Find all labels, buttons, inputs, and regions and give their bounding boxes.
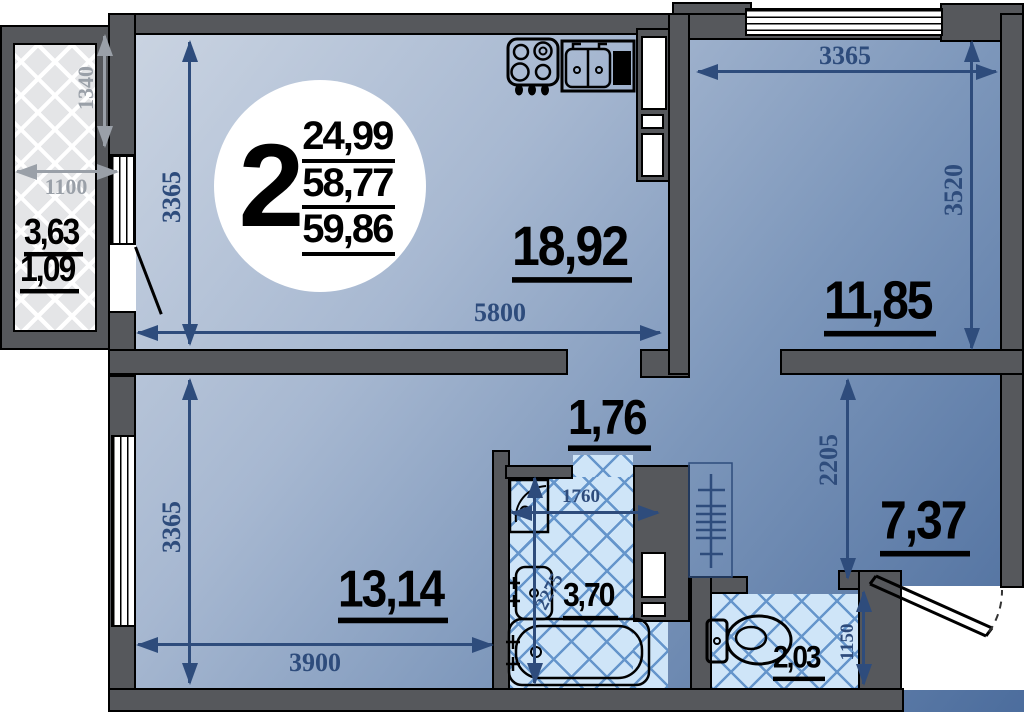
window-bedroom-left — [111, 435, 136, 627]
vent-shaft-kitchen-1 — [641, 36, 667, 110]
vent-shaft-bath-2 — [641, 602, 666, 617]
kitchen-sink-icon — [560, 38, 636, 94]
dim-arrow-bathroom-depth — [533, 478, 536, 683]
dim-arrow-kitchen-depth — [188, 42, 191, 344]
dim-label-balcony-width: 1100 — [45, 174, 88, 200]
dim-arrow-hallway-depth — [846, 380, 849, 578]
dim-arrow-balcony-width — [17, 170, 117, 173]
apartment-areas: 24,99 58,77 59,86 — [302, 116, 395, 256]
bathroom-doorway-floor — [573, 455, 633, 477]
apartment-badge: 2 24,99 58,77 59,86 — [214, 80, 426, 292]
apartment-total-area: 58,77 — [302, 163, 395, 210]
dim-label-balcony-depth: 1340 — [73, 66, 99, 110]
window-bedroom-right — [745, 8, 943, 36]
dim-label-kitchen-depth: 3365 — [157, 171, 187, 223]
wall-kitchen-bottom — [108, 349, 568, 375]
coat-rack-icon — [688, 462, 734, 580]
vent-shaft-kitchen-3 — [641, 133, 664, 177]
area-label-corridor: 1,76 — [568, 395, 651, 451]
dim-label-hallway-depth: 2205 — [814, 434, 844, 486]
area-label-bedroom-left: 13,14 — [338, 565, 448, 623]
apartment-total-area-with-balcony: 59,86 — [302, 209, 395, 256]
wall-right — [1000, 13, 1024, 588]
entrance-door — [852, 568, 1024, 696]
dim-label-wc-depth: 1150 — [837, 624, 859, 661]
apartment-number: 2 — [239, 127, 299, 245]
dim-label-bedroomright-width: 3365 — [819, 41, 871, 71]
area-label-bedroom-right: 11,85 — [824, 276, 936, 336]
dim-arrow-bedroomright-depth — [970, 42, 973, 348]
dim-arrow-bedroomleft-depth — [188, 380, 191, 683]
dim-label-bedroomleft-width: 3900 — [289, 648, 341, 678]
area-label-balcony-reduced: 1,09 — [20, 252, 79, 294]
balcony-door-opening — [110, 245, 136, 311]
area-label-wc: 2,03 — [773, 643, 825, 681]
wall-bottom — [108, 688, 904, 712]
vent-shaft-bath-1 — [641, 552, 666, 598]
area-label-hallway: 7,37 — [880, 496, 970, 556]
dim-arrow-wc-depth — [862, 592, 865, 684]
dim-label-bedroomleft-depth: 3365 — [157, 501, 187, 553]
area-label-kitchen-living: 18,92 — [512, 220, 632, 282]
dim-label-bedroomright-depth: 3520 — [939, 164, 969, 216]
dim-label-bathroom-width: 1760 — [562, 486, 600, 508]
area-label-bathroom: 3,70 — [563, 580, 618, 620]
apartment-living-area: 24,99 — [302, 116, 395, 163]
dim-arrow-balcony-depth — [103, 36, 106, 146]
wall-hallway-top — [780, 349, 1024, 375]
wall-bathroom-right-duct — [633, 465, 690, 622]
dim-label-kitchen-width: 5800 — [474, 298, 526, 328]
wall-kitchen-room-divider — [668, 13, 690, 375]
stove-icon — [505, 36, 561, 96]
dim-arrow-bedroomleft-width — [138, 643, 492, 646]
floor-plan: 3365 5800 3365 3520 3365 3900 2205 1760 … — [0, 0, 1024, 717]
wall-top-kitchen — [108, 13, 680, 35]
vent-shaft-kitchen-2 — [641, 114, 664, 129]
dim-arrow-kitchen-width — [138, 331, 660, 334]
